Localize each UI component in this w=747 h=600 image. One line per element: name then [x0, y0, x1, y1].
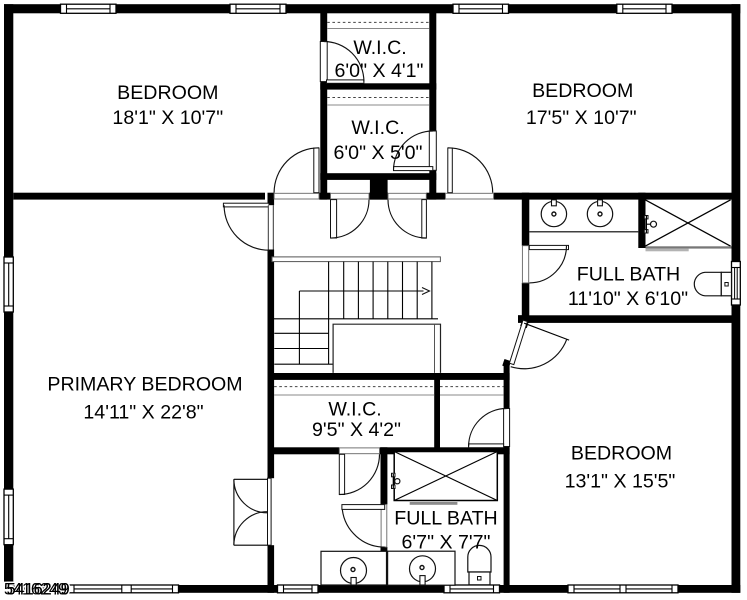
- svg-text:PRIMARY BEDROOM: PRIMARY BEDROOM: [47, 374, 242, 396]
- svg-text:6'7" X 7'7": 6'7" X 7'7": [402, 532, 491, 554]
- svg-text:6'0" X 4'1": 6'0" X 4'1": [335, 60, 424, 82]
- svg-text:11'10" X 6'10": 11'10" X 6'10": [568, 288, 688, 310]
- svg-text:13'1" X 15'5": 13'1" X 15'5": [565, 471, 676, 493]
- svg-text:W.I.C.: W.I.C.: [353, 37, 406, 59]
- svg-text:5416249: 5416249: [7, 580, 70, 598]
- svg-text:9'5" X 4'2": 9'5" X 4'2": [312, 419, 401, 441]
- svg-text:BEDROOM: BEDROOM: [571, 442, 672, 464]
- svg-text:W.I.C.: W.I.C.: [328, 399, 381, 421]
- svg-text:14'11" X 22'8": 14'11" X 22'8": [83, 402, 203, 424]
- svg-text:18'1" X 10'7": 18'1" X 10'7": [112, 107, 223, 129]
- svg-text:BEDROOM: BEDROOM: [532, 80, 633, 102]
- svg-text:17'5" X 10'7": 17'5" X 10'7": [526, 107, 637, 129]
- svg-text:FULL BATH: FULL BATH: [577, 264, 680, 286]
- svg-text:W.I.C.: W.I.C.: [351, 117, 404, 139]
- svg-text:BEDROOM: BEDROOM: [117, 82, 218, 104]
- svg-text:FULL BATH: FULL BATH: [394, 508, 497, 530]
- svg-text:6'0" X 5'0": 6'0" X 5'0": [334, 142, 423, 164]
